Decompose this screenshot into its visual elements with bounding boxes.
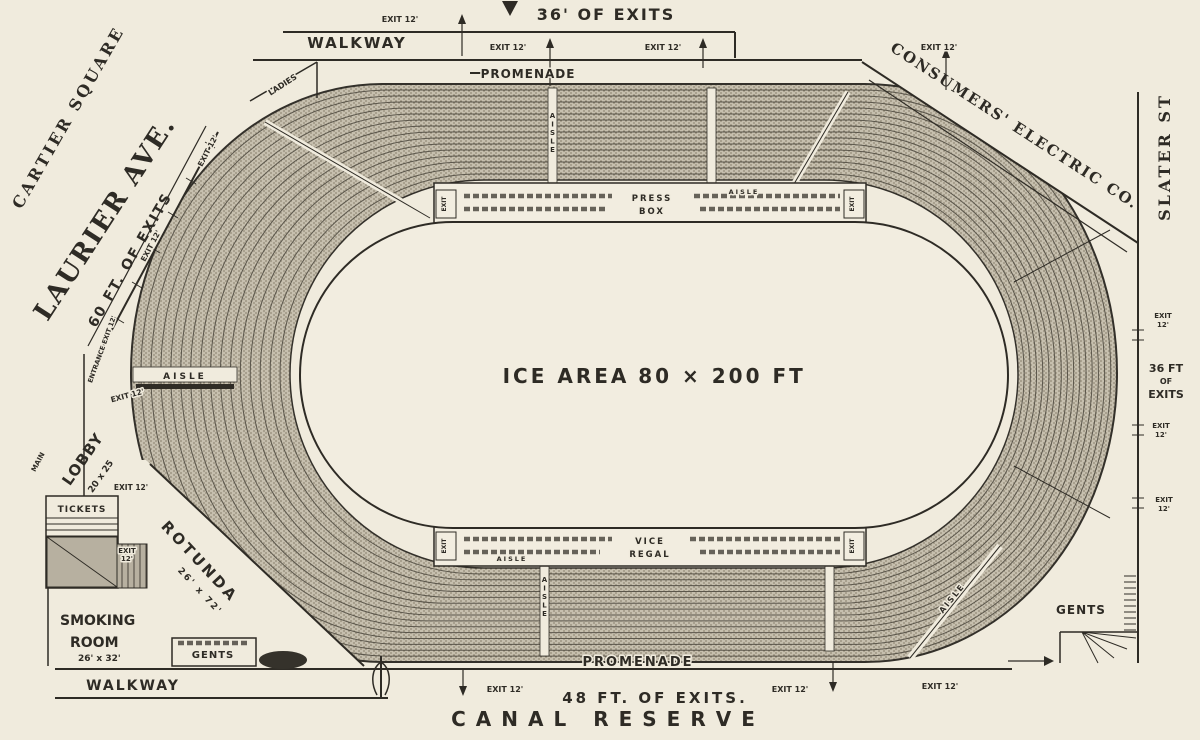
twelve-right-1: 12' [1157,321,1169,329]
promenade-top-label: PROMENADE [481,67,576,81]
label-exits-bottom: 48 FT. OF EXITS. [562,689,748,707]
walkway-top-label: WALKWAY [307,34,407,52]
label-exits-right-3: EXITS [1148,388,1184,401]
aisle-rail-left [136,384,234,389]
aisle-left-label: AISLE [163,372,207,382]
exit12-top-2: EXIT 12' [490,43,526,52]
exit-tickets-2: EXIT [118,547,136,555]
exit12-top-4: EXIT 12' [921,43,957,52]
label-exits-right-1: 36 FT [1149,362,1184,375]
press-exit-left-label: EXIT [441,196,448,212]
aisle-gap-bottom-2 [825,561,834,651]
aisle-top-band-label: AISLE [729,188,760,196]
vice-exit-right-label: EXIT [849,538,856,554]
exit-right-3: EXIT [1155,496,1173,504]
street-canal-reserve: CANAL RESERVE [451,707,765,731]
twelve-right-3: 12' [1158,505,1170,513]
vice-exit-left-label: EXIT [441,538,448,554]
twelve-right-2: 12' [1155,431,1167,439]
aisle-vertical-top-label: AISLE [550,112,556,154]
aisle-gap-top-2 [707,88,716,184]
ice-area-dimensions: 80 × 200 FT [638,364,806,388]
gents-left-label: GENTS [192,650,234,661]
arena-floor-plan: CARTIER SQUARE LAURIER AVE. SLATER ST CO… [0,0,1200,740]
exit12-bottom-3: EXIT 12' [922,682,958,691]
gents-left-blob [259,651,307,669]
label-exits-top: 36' OF EXITS [537,5,676,24]
smoking-room-label-2: ROOM [70,635,119,651]
label-exits-right-2: OF [1160,377,1172,386]
press-exit-right-label: EXIT [849,196,856,212]
vice-regal-label-2: REGAL [629,550,670,560]
aisle-vertical-bottom-label: AISLE [542,576,548,618]
walkway-bottom-label: WALKWAY [86,678,180,694]
exit12-top-3: EXIT 12' [645,43,681,52]
exit-right-1: EXIT [1154,312,1172,320]
exit12-top-1: EXIT 12' [382,15,418,24]
smoking-room-label-1: SMOKING [60,613,135,629]
gents-right-label: GENTS [1056,603,1106,617]
twelve-tickets-2: 12' [121,555,133,563]
aisle-bottom-band-label: AISLE [497,555,528,563]
exit12-tickets-1: EXIT 12' [114,483,148,492]
exit-right-2: EXIT [1152,422,1170,430]
exit12-bottom-2: EXIT 12' [772,685,808,694]
promenade-bottom-label: PROMENADE [582,655,693,670]
exit12-bottom-1: EXIT 12' [487,685,523,694]
tickets-label: TICKETS [58,505,107,515]
vice-regal-label-1: VICE [635,537,665,547]
press-box-label-1: PRESS [632,194,672,204]
press-box-label-2: BOX [639,207,665,217]
smoking-room-size: 26' x 32' [78,654,121,664]
street-slater-st: SLATER ST [1155,93,1174,221]
ice-area-label: ICE AREA [503,364,630,388]
